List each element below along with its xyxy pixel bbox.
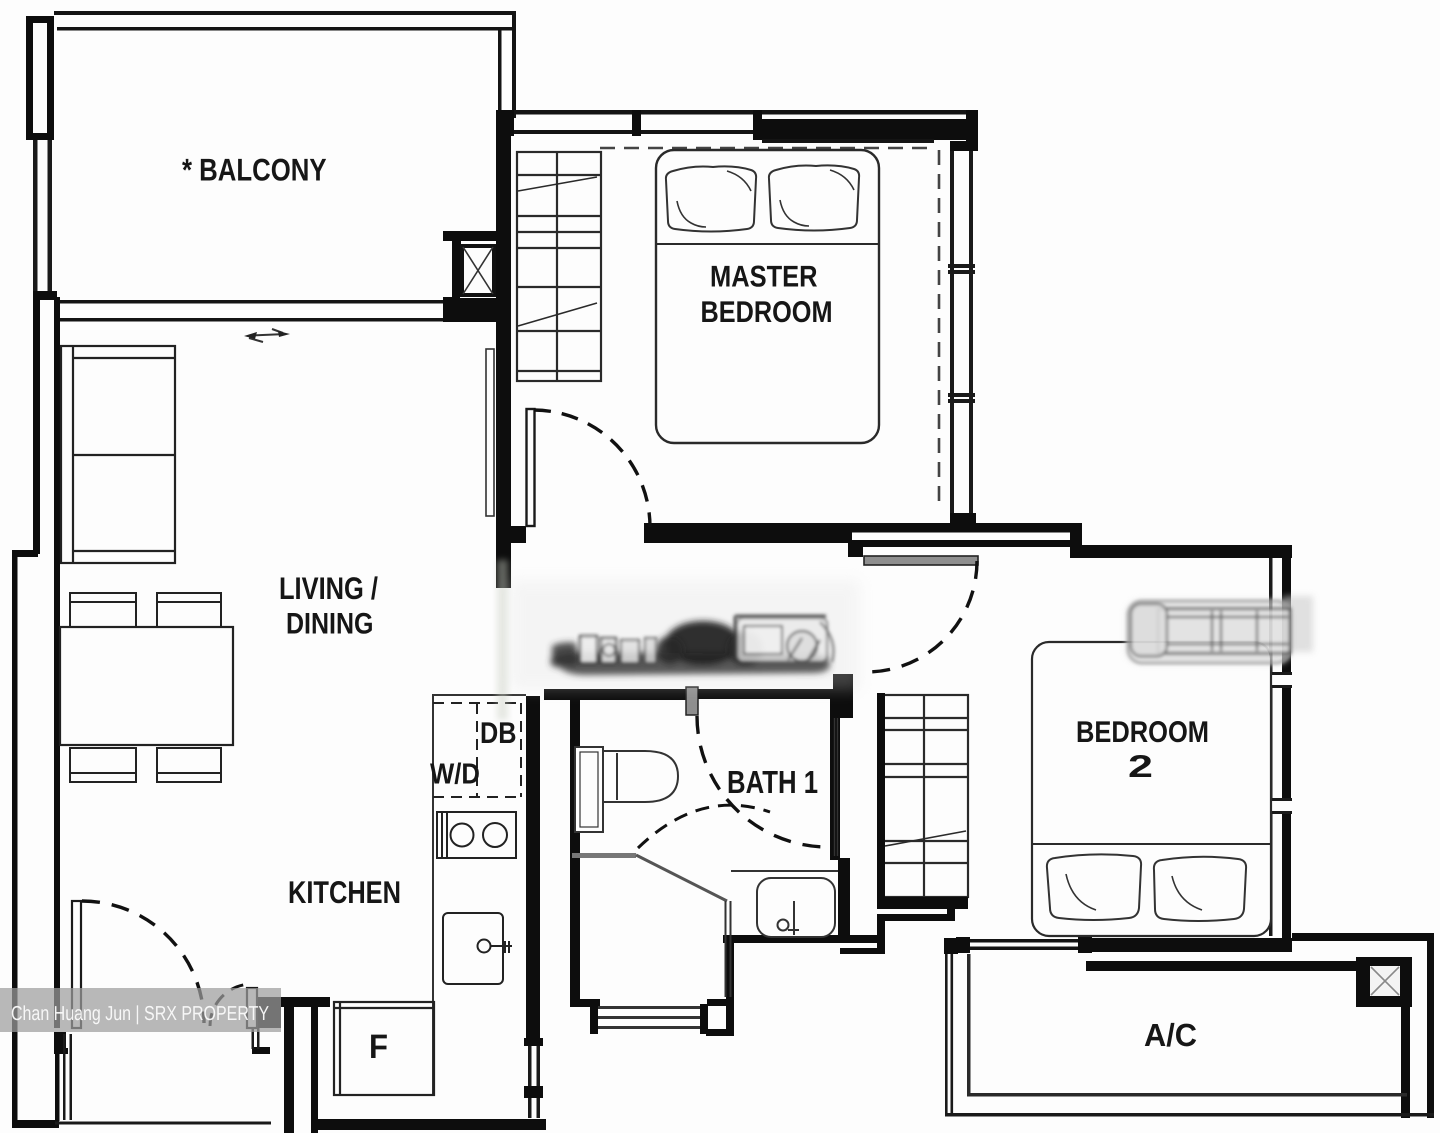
svg-text:DB: DB xyxy=(480,717,517,750)
svg-text:W/D: W/D xyxy=(430,759,480,791)
svg-text:* BALCONY: * BALCONY xyxy=(182,153,327,188)
svg-text:DINING: DINING xyxy=(286,608,374,641)
svg-text:BATH 1: BATH 1 xyxy=(727,764,818,800)
svg-text:BEDROOM: BEDROOM xyxy=(701,296,833,329)
svg-text:MASTER: MASTER xyxy=(710,261,818,294)
svg-text:BEDROOM: BEDROOM xyxy=(1076,716,1209,749)
svg-text:Chan Huang Jun | SRX PROPERTY: Chan Huang Jun | SRX PROPERTY xyxy=(11,1003,269,1025)
svg-text:KITCHEN: KITCHEN xyxy=(288,874,401,910)
svg-text:LIVING /: LIVING / xyxy=(279,571,378,606)
svg-text:2: 2 xyxy=(1128,748,1153,784)
svg-text:A/C: A/C xyxy=(1144,1017,1197,1053)
svg-text:F: F xyxy=(369,1028,388,1066)
